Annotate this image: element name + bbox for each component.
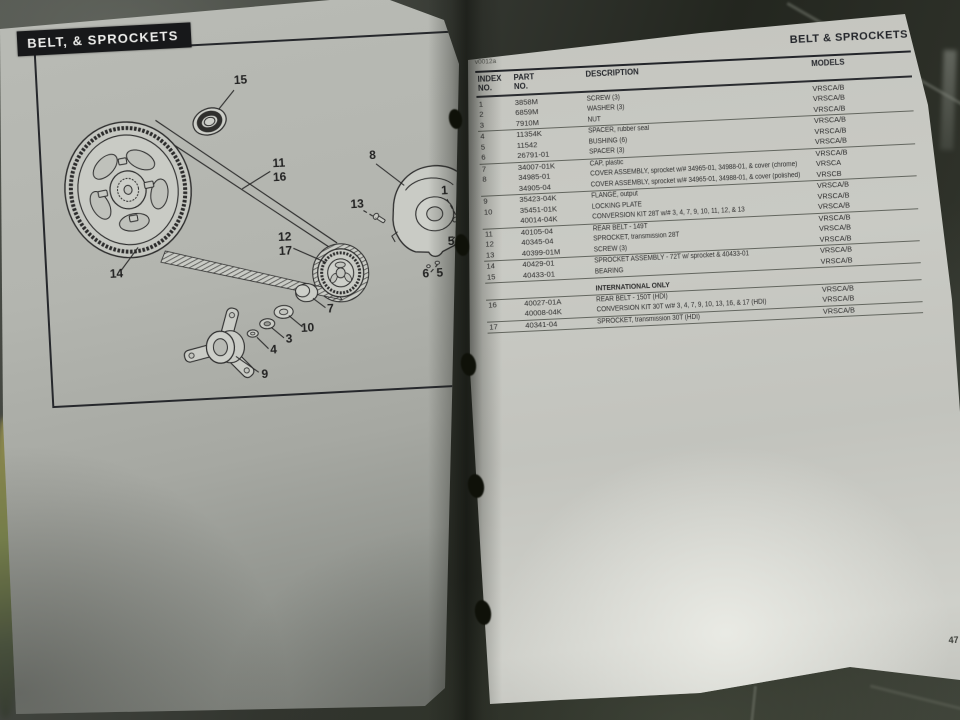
diagram-callout-16: 16 — [273, 170, 287, 185]
cell-index-no: 13 — [486, 249, 522, 261]
output-flange — [181, 306, 256, 383]
cell-index-no — [484, 216, 520, 228]
cell-index-no — [483, 184, 519, 196]
diagram-border-box: 15111681312171415265710349 — [34, 30, 486, 408]
diagram-callout-5: 5 — [436, 265, 444, 279]
diagram-callout-14: 14 — [109, 266, 123, 281]
parts-table: 1 3858M SCREW (3) VRSCA/B 2 6859M WASHER… — [476, 77, 923, 334]
page-number: 47 — [948, 635, 958, 645]
figure-code: v0012a — [475, 58, 497, 66]
photo-parts-catalog: BELT, & SPROCKETS — [0, 0, 960, 720]
cell-part-no: 40341-04 — [525, 317, 597, 331]
cell-index-no: 6 — [481, 151, 517, 163]
diagram-callout-17: 17 — [278, 243, 292, 258]
screw-13 — [372, 212, 386, 224]
floor-tile-grout-line — [870, 685, 960, 710]
section-title: BELT, & SPROCKETS — [27, 28, 179, 51]
cell-index-no: 3 — [480, 119, 516, 131]
diagram-callout-9: 9 — [261, 367, 269, 381]
diagram-callout-7: 7 — [327, 301, 335, 315]
page-header-title: BELT & SPROCKETS — [789, 29, 908, 47]
diagram-callout-3: 3 — [285, 331, 293, 345]
left-page-content: BELT, & SPROCKETS — [6, 0, 511, 709]
col-header-index: INDEX NO. — [477, 75, 514, 93]
diagram-callout-13: 13 — [350, 197, 364, 212]
cell-index-no — [489, 309, 525, 321]
diagram-callout-4: 4 — [270, 342, 278, 356]
col-header-part: PART NO. — [513, 71, 586, 91]
bearing — [189, 103, 230, 139]
diagram-callout-6: 6 — [422, 266, 430, 280]
diagram-callout-11: 11 — [272, 156, 286, 171]
cell-part-no: 40433-01 — [523, 267, 595, 281]
diagram-callout-8: 8 — [369, 148, 377, 162]
diagram-callout-1: 1 — [441, 183, 449, 197]
diagram-callout-15: 15 — [233, 72, 247, 87]
diagram-callout-12: 12 — [278, 229, 292, 244]
diagram-callout-10: 10 — [300, 320, 314, 335]
binder-hole — [453, 233, 471, 257]
rear-sprocket-pulley — [53, 111, 203, 269]
exploded-diagram: 15111681312171415265710349 — [36, 32, 484, 404]
right-page-content: v0012a BELT & SPROCKETS INDEX NO. PART N… — [474, 24, 941, 704]
floor-highlight — [940, 50, 956, 150]
right-page: v0012a BELT & SPROCKETS INDEX NO. PART N… — [440, 0, 960, 720]
cell-index-no — [488, 287, 524, 299]
col-header-models: MODELS — [811, 56, 912, 77]
left-page: BELT, & SPROCKETS — [0, 0, 475, 720]
floor-tile-grout-line — [750, 686, 757, 720]
cell-index-no: 17 — [489, 321, 525, 333]
cell-index-no: 15 — [487, 271, 523, 283]
